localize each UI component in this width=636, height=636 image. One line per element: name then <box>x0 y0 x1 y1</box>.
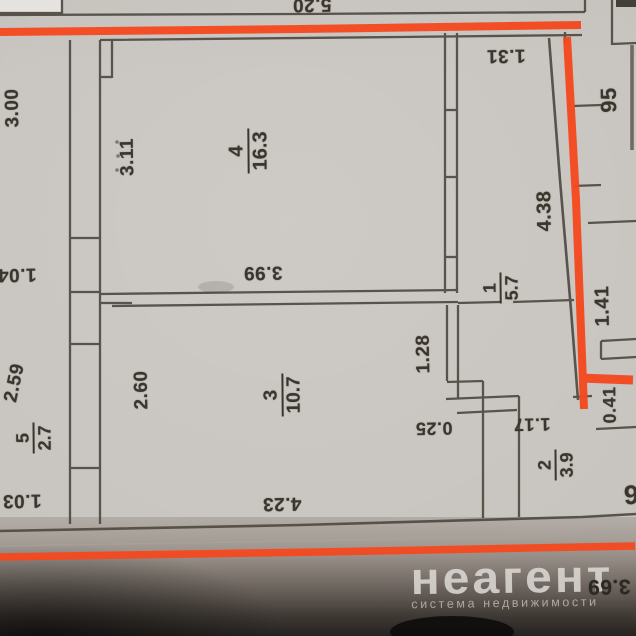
watermark-tagline: система недвижимости <box>411 595 599 612</box>
floorplan-photo: 5.20 1.31 3.00 3.11 95 4.38 1.41 1.04 3.… <box>0 0 636 636</box>
red-annotation-svg <box>0 0 636 636</box>
red-line-top <box>0 25 581 32</box>
red-line-right <box>567 37 584 409</box>
red-line-branch <box>580 378 633 380</box>
dim-3-69-partial: 3.69 <box>587 574 630 599</box>
